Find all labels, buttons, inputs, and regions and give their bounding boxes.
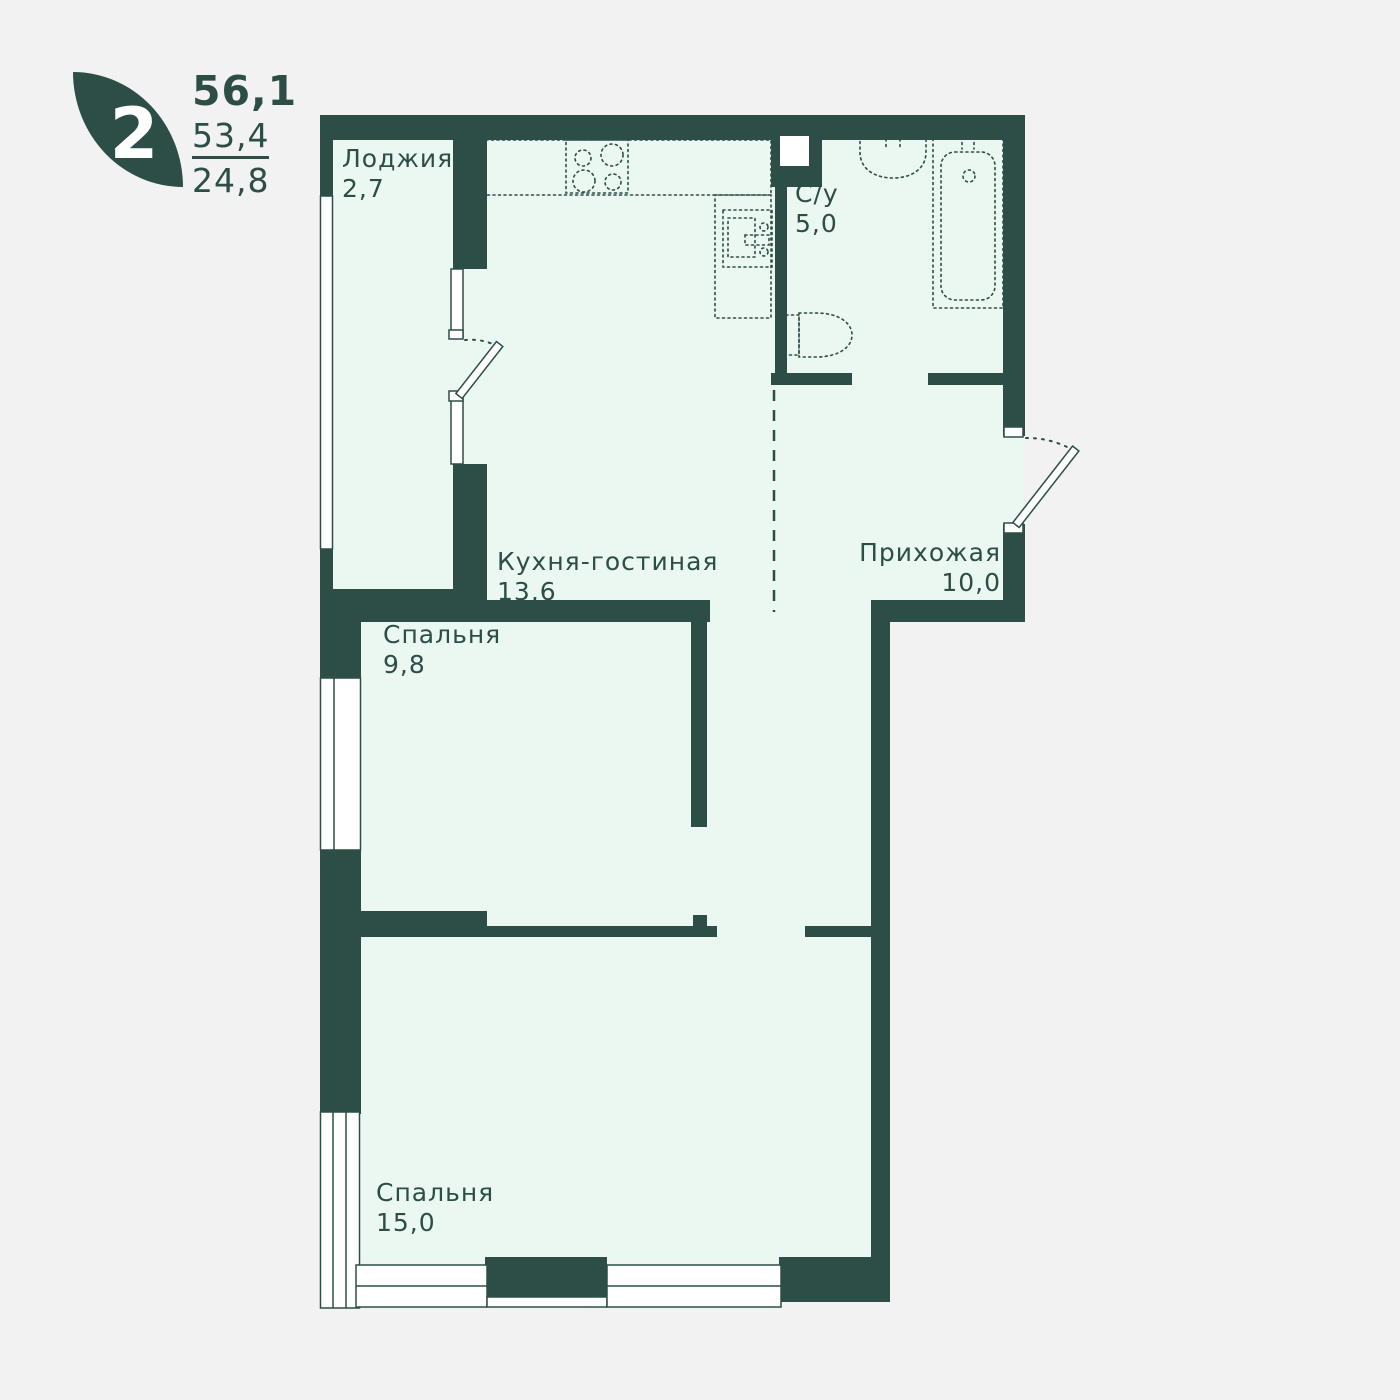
window-loggia	[321, 196, 333, 549]
wall-bottom-mid	[485, 1257, 607, 1302]
balcony-door-sill	[449, 330, 463, 339]
area-other: 24,8	[192, 163, 392, 199]
vent-shaft	[780, 136, 809, 166]
window-strip-bottom	[487, 1297, 607, 1307]
floorplan-canvas: Лоджия 2,7 Кухня-гостиная 13,6 С/у 5,0 П…	[0, 0, 1400, 1400]
wall-bedrooms-divider-thick	[355, 911, 487, 937]
entrance-door-jamb	[1004, 427, 1023, 437]
area-figures: 56,1 53,4 24,8	[192, 68, 392, 199]
room-label-bedroom-large: Спальня 15,0	[376, 1178, 494, 1238]
room-label-bedroom-small: Спальня 9,8	[383, 620, 501, 680]
wall-bedroom2-top-right	[805, 926, 871, 937]
wall-top	[320, 115, 1025, 140]
window-bedroom2	[607, 1265, 781, 1307]
wall-hallway-bottom	[871, 600, 1025, 622]
room-area: 10,0	[859, 568, 1001, 598]
room-name: Кухня-гостиная	[497, 547, 718, 577]
wall-right-corridor	[871, 600, 890, 1302]
wall-right-upper	[1003, 115, 1025, 436]
room-area: 9,8	[383, 650, 501, 680]
room-area: 5,0	[795, 209, 839, 239]
room-area: 15,0	[376, 1208, 494, 1238]
wall-left-bedrooms-mid	[320, 848, 361, 1114]
wall-bottom-right	[779, 1257, 890, 1302]
wall-bedroom1-right	[691, 611, 707, 827]
floor-area	[326, 120, 1023, 1262]
room-name: С/у	[795, 179, 839, 209]
room-name: Спальня	[376, 1178, 494, 1208]
room-label-hallway: Прихожая 10,0	[859, 538, 1001, 598]
wall-loggia-divider-bottom	[453, 464, 487, 591]
window-corner-horizontal	[356, 1265, 487, 1307]
window-balcony-upper	[451, 269, 463, 337]
area-total: 56,1	[192, 68, 392, 114]
room-label-bathroom: С/у 5,0	[795, 179, 839, 239]
window-balcony-lower	[451, 399, 463, 464]
wall-loggia-divider-top	[453, 138, 487, 269]
wall-bathroom-bottom-right	[928, 373, 1005, 385]
room-area: 13,6	[497, 577, 718, 607]
room-name: Прихожая	[859, 538, 1001, 568]
wall-bathroom-bottom-left	[771, 373, 852, 385]
window-corner-vertical	[321, 1112, 360, 1308]
room-name: Спальня	[383, 620, 501, 650]
window-bedroom1	[321, 678, 361, 850]
floorplan-drawing	[0, 0, 1400, 1400]
room-count: 2	[110, 93, 159, 175]
wall-bedrooms-divider-thin	[485, 926, 717, 937]
room-label-kitchen-living: Кухня-гостиная 13,6	[497, 547, 718, 607]
wall-left-loggia-lower	[320, 547, 333, 592]
area-living: 53,4	[192, 118, 269, 159]
